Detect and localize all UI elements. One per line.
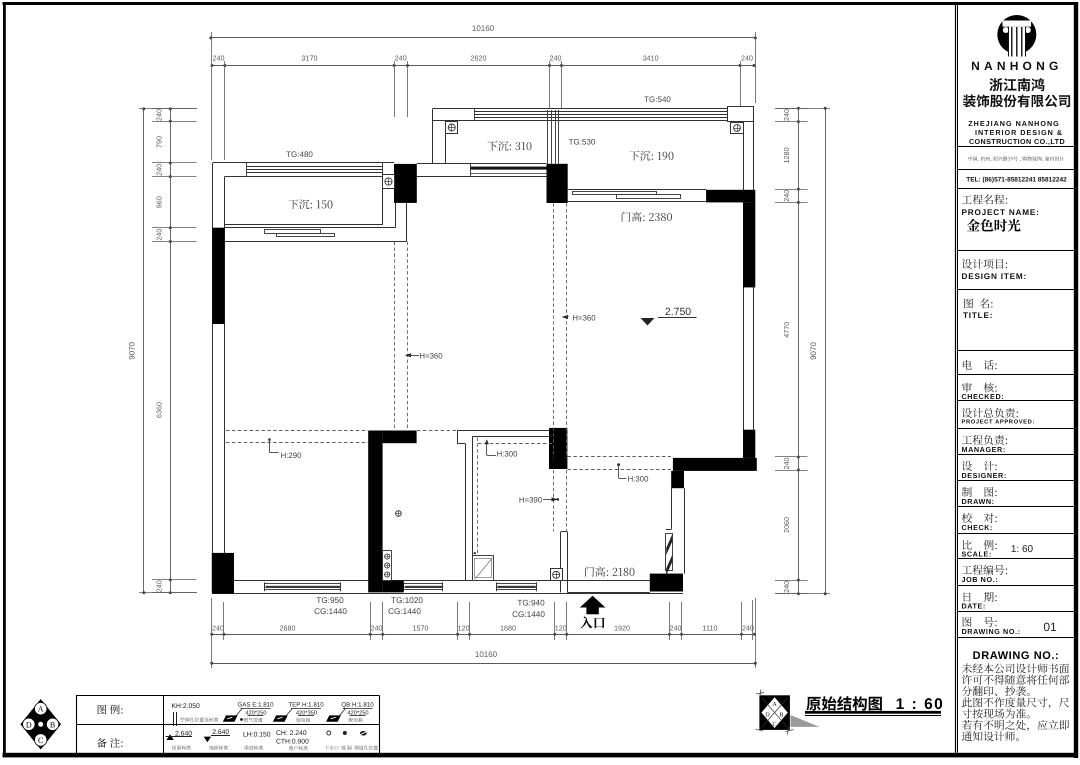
svg-text:240: 240	[155, 109, 164, 121]
svg-text:4770: 4770	[782, 322, 791, 338]
svg-text:TG:540: TG:540	[644, 95, 671, 104]
svg-text:6360: 6360	[155, 402, 164, 418]
svg-text:240: 240	[213, 53, 225, 62]
svg-text:NANHONG: NANHONG	[971, 59, 1062, 73]
svg-text:10160: 10160	[475, 650, 498, 659]
svg-text:2060: 2060	[782, 517, 791, 533]
svg-text:SCALE:: SCALE:	[962, 550, 992, 559]
svg-text:A: A	[772, 701, 777, 708]
svg-text:D: D	[26, 720, 32, 729]
svg-text:TG:480: TG:480	[286, 150, 313, 159]
svg-text:01: 01	[1043, 620, 1057, 634]
svg-text:INTERIOR DESIGN &: INTERIOR DESIGN &	[975, 128, 1063, 137]
svg-text:JOB NO.:: JOB NO.:	[962, 575, 999, 584]
svg-text:1280: 1280	[782, 147, 791, 163]
svg-text:3170: 3170	[302, 53, 318, 62]
svg-text:D: D	[765, 712, 770, 719]
svg-text:CG:1440: CG:1440	[314, 607, 347, 616]
svg-text:9070: 9070	[128, 341, 137, 359]
svg-text:240: 240	[741, 53, 753, 62]
svg-text:CONSTRUCTION CO.,LTD: CONSTRUCTION CO.,LTD	[969, 137, 1065, 146]
svg-text:DRAWN:: DRAWN:	[962, 497, 995, 506]
svg-text:240: 240	[371, 624, 383, 633]
svg-text:CHECK:: CHECK:	[962, 523, 994, 532]
svg-text:960: 960	[155, 196, 164, 208]
svg-text:QB H:1.810: QB H:1.810	[341, 702, 374, 709]
svg-text:790: 790	[155, 136, 164, 148]
svg-text:C: C	[773, 721, 777, 728]
svg-text:1 : 60: 1 : 60	[896, 696, 945, 713]
svg-text:CHECKED:: CHECKED:	[962, 392, 1005, 401]
svg-text:9070: 9070	[809, 342, 818, 360]
svg-text:240: 240	[782, 109, 791, 121]
svg-text:TG:940: TG:940	[517, 599, 545, 608]
svg-text:1920: 1920	[614, 624, 630, 633]
svg-text:240: 240	[155, 164, 164, 176]
svg-text:C: C	[38, 736, 43, 745]
svg-text:2680: 2680	[280, 624, 296, 633]
svg-text:CG:1440: CG:1440	[388, 607, 421, 616]
svg-text:DRAWING NO.:: DRAWING NO.:	[973, 650, 1060, 662]
svg-text:B: B	[779, 712, 783, 719]
svg-text:PROJECT APPROVED:: PROJECT APPROVED:	[962, 419, 1035, 426]
svg-text:120: 120	[555, 624, 567, 633]
svg-text:TEL: (86)571-85812241 8581224: TEL: (86)571-85812241 85812242	[966, 177, 1067, 184]
svg-text:LH:0.150: LH:0.150	[243, 731, 271, 738]
svg-text:PROJECT NAME:: PROJECT NAME:	[962, 208, 1040, 217]
svg-text:DESIGNER:: DESIGNER:	[962, 471, 1007, 480]
svg-text:240: 240	[782, 581, 791, 593]
svg-text:3410: 3410	[643, 53, 659, 62]
svg-text:120: 120	[458, 624, 470, 633]
svg-text:2.640: 2.640	[212, 729, 229, 736]
svg-text:H:290: H:290	[281, 451, 302, 460]
svg-text:CG:1440: CG:1440	[512, 610, 545, 619]
svg-text:240: 240	[782, 458, 791, 470]
svg-text:H=360: H=360	[419, 351, 443, 360]
svg-text:240: 240	[212, 624, 224, 633]
svg-text:MANAGER:: MANAGER:	[962, 445, 1006, 454]
svg-text:240: 240	[155, 229, 164, 241]
svg-text:2620: 2620	[471, 53, 487, 62]
svg-text:10160: 10160	[472, 24, 495, 33]
svg-text:GAS E:1.810: GAS E:1.810	[237, 702, 274, 709]
svg-text:TEP H:1.810: TEP H:1.810	[288, 702, 324, 709]
svg-text:TG:950: TG:950	[316, 596, 344, 605]
svg-text:DATE:: DATE:	[962, 602, 986, 611]
svg-text:ZHEJIANG NANHONG: ZHEJIANG NANHONG	[968, 119, 1059, 128]
svg-text:240: 240	[550, 53, 562, 62]
svg-text:TG:1020: TG:1020	[391, 596, 423, 605]
svg-text:CH: 2.240: CH: 2.240	[276, 730, 307, 737]
svg-text:240: 240	[670, 624, 682, 633]
svg-text:H:300: H:300	[497, 450, 518, 459]
svg-text:1570: 1570	[413, 624, 429, 633]
svg-text:TG:530: TG:530	[569, 137, 596, 146]
svg-text:H:300: H:300	[628, 475, 649, 484]
svg-text:2.750: 2.750	[665, 306, 691, 318]
svg-text:1110: 1110	[703, 624, 718, 633]
svg-text:H=390: H=390	[519, 496, 543, 505]
svg-text:240: 240	[155, 580, 164, 592]
svg-text:1: 60: 1: 60	[1011, 544, 1034, 555]
svg-text:B: B	[50, 720, 55, 729]
svg-text:DRAWING NO.:: DRAWING NO.:	[962, 627, 1021, 636]
svg-text:CTH:0.900: CTH:0.900	[276, 739, 309, 746]
svg-text:KH:2.050: KH:2.050	[172, 703, 201, 710]
svg-text:DESIGN ITEM:: DESIGN ITEM:	[962, 272, 1028, 281]
svg-text:H=360: H=360	[572, 313, 596, 322]
svg-text:A: A	[38, 705, 44, 714]
svg-text:240: 240	[395, 53, 407, 62]
svg-text:TITLE:: TITLE:	[963, 311, 993, 320]
svg-text:1680: 1680	[500, 624, 516, 633]
svg-text:240: 240	[782, 190, 791, 202]
